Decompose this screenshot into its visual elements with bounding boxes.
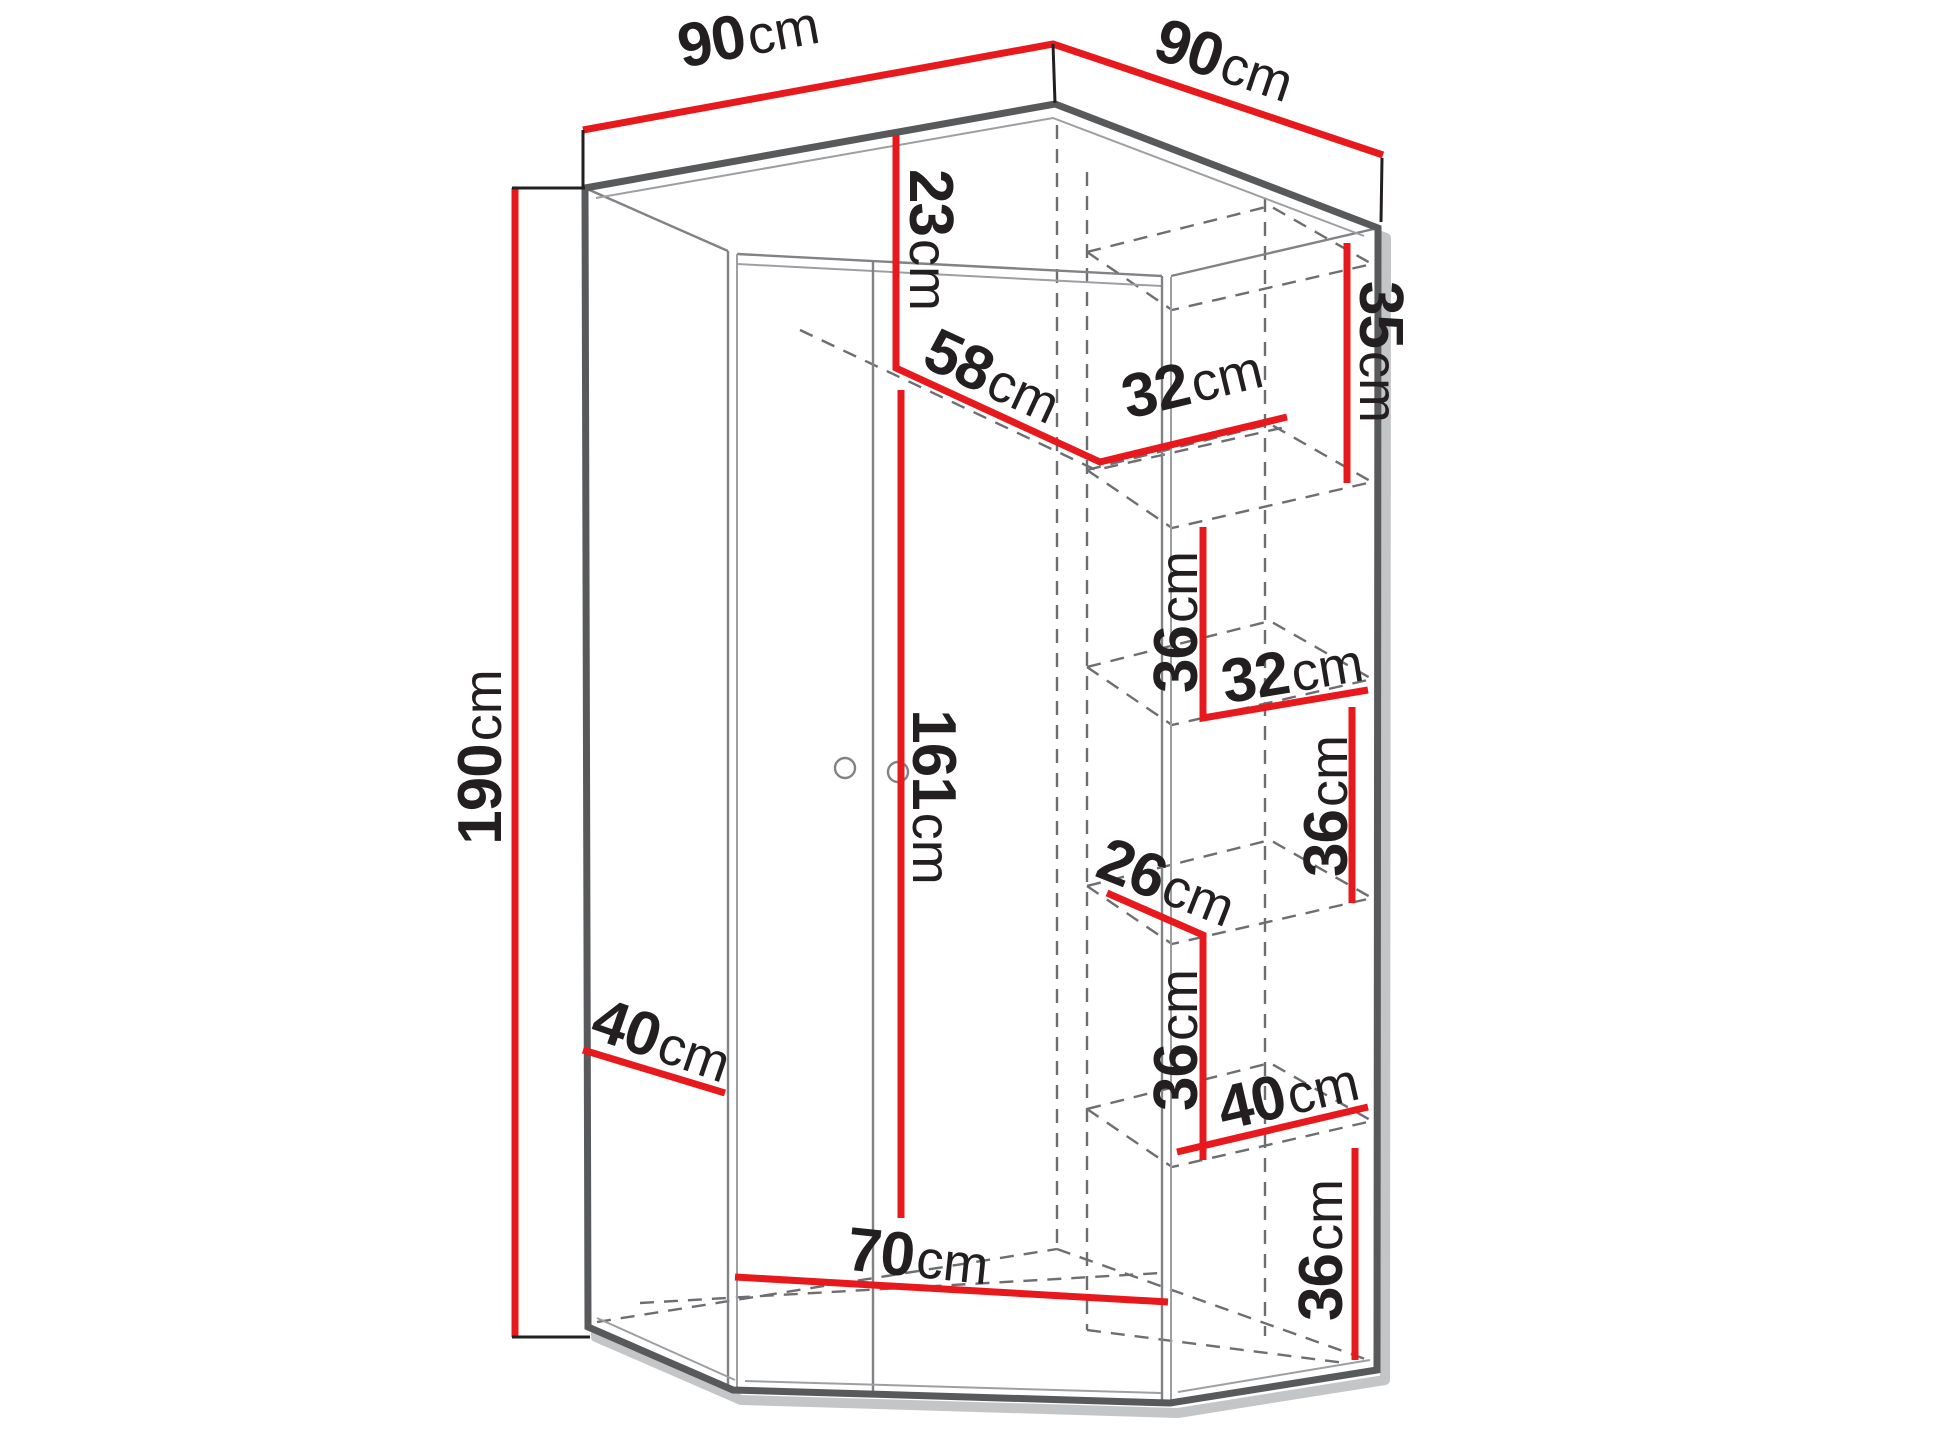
tick-apex <box>1053 44 1055 103</box>
dim-label-upper-right-height: 35cm <box>1346 281 1415 423</box>
corner-wardrobe-diagram: 90cm 90cm 190cm 23cm 58cm 32cm 35cm 36cm… <box>0 0 1940 1455</box>
diagram-canvas: 90cm 90cm 190cm 23cm 58cm 32cm 35cm 36cm… <box>0 0 1940 1455</box>
dim-label-shelf-gap-upper: 36cm <box>1142 551 1211 693</box>
dim-label-total-height: 190cm <box>446 669 515 844</box>
dim-label-top-left-width: 90cm <box>672 0 824 82</box>
body-face <box>585 104 1378 1403</box>
dim-label-shelf-gap-lower: 36cm <box>1287 1179 1356 1321</box>
left-door-handle <box>835 758 855 778</box>
dim-label-top-inset: 23cm <box>896 169 965 311</box>
dim-label-shelf-gap-mid-upper: 36cm <box>1292 735 1361 877</box>
dim-label-door-height: 161cm <box>899 709 968 884</box>
tick-top-right <box>1381 158 1382 222</box>
dim-label-shelf-gap-mid-lower: 36cm <box>1142 969 1211 1111</box>
